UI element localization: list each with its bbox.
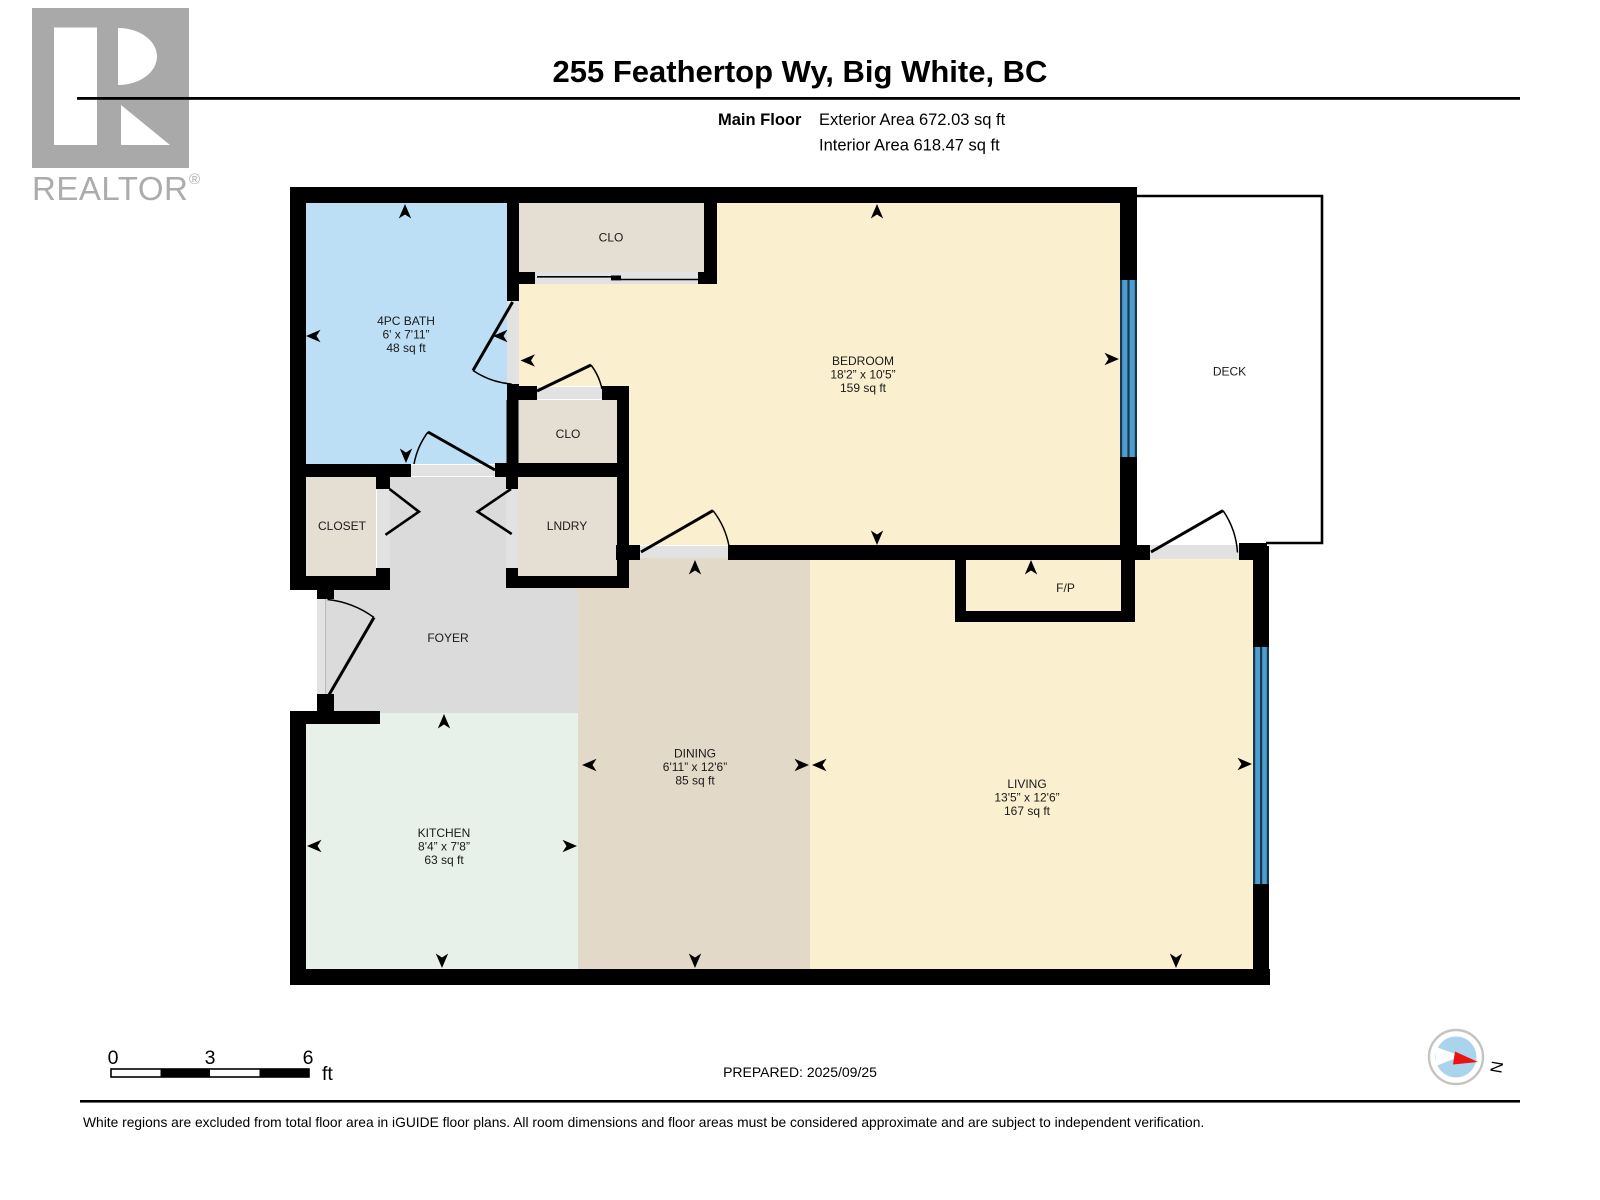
svg-text:KITCHEN: KITCHEN <box>418 826 471 840</box>
svg-text:167 sq ft: 167 sq ft <box>1004 804 1051 818</box>
svg-text:4PC BATH: 4PC BATH <box>377 314 435 328</box>
svg-text:CLOSET: CLOSET <box>318 519 367 533</box>
svg-text:85 sq ft: 85 sq ft <box>675 774 715 788</box>
svg-text:White regions are excluded fro: White regions are excluded from total fl… <box>83 1115 1204 1130</box>
svg-text:255 Feathertop Wy, Big White,: 255 Feathertop Wy, Big White, BC <box>553 54 1048 89</box>
svg-text:6'11” x 12'6”: 6'11” x 12'6” <box>663 760 727 774</box>
svg-text:DINING: DINING <box>674 747 716 761</box>
svg-text:REALTOR: REALTOR <box>32 170 188 207</box>
svg-text:F/P: F/P <box>1056 581 1075 595</box>
svg-text:FOYER: FOYER <box>427 631 469 645</box>
svg-text:13'5” x 12'6”: 13'5” x 12'6” <box>994 791 1059 805</box>
svg-text:8'4” x 7'8”: 8'4” x 7'8” <box>418 840 470 854</box>
svg-text:Exterior Area 672.03 sq ft: Exterior Area 672.03 sq ft <box>819 111 1006 129</box>
svg-text:6: 6 <box>303 1047 314 1069</box>
svg-text:®: ® <box>189 171 200 188</box>
svg-text:DECK: DECK <box>1213 365 1246 379</box>
svg-text:ft: ft <box>322 1063 333 1085</box>
svg-text:LIVING: LIVING <box>1007 777 1046 791</box>
svg-text:CLO: CLO <box>556 427 581 441</box>
svg-text:48 sq ft: 48 sq ft <box>386 341 426 355</box>
svg-text:6' x 7'11”: 6' x 7'11” <box>382 328 429 342</box>
svg-text:LNDRY: LNDRY <box>547 519 587 533</box>
svg-text:Main Floor: Main Floor <box>718 111 802 129</box>
svg-text:Interior Area 618.47 sq ft: Interior Area 618.47 sq ft <box>819 137 1000 155</box>
svg-text:159 sq ft: 159 sq ft <box>840 381 887 395</box>
svg-text:63 sq ft: 63 sq ft <box>424 853 464 867</box>
svg-text:PREPARED: 2025/09/25: PREPARED: 2025/09/25 <box>723 1064 877 1080</box>
svg-text:CLO: CLO <box>599 231 624 245</box>
svg-text:3: 3 <box>205 1047 216 1069</box>
svg-text:BEDROOM: BEDROOM <box>832 354 894 368</box>
svg-text:0: 0 <box>108 1047 119 1069</box>
svg-text:18'2” x 10'5”: 18'2” x 10'5” <box>830 368 895 382</box>
